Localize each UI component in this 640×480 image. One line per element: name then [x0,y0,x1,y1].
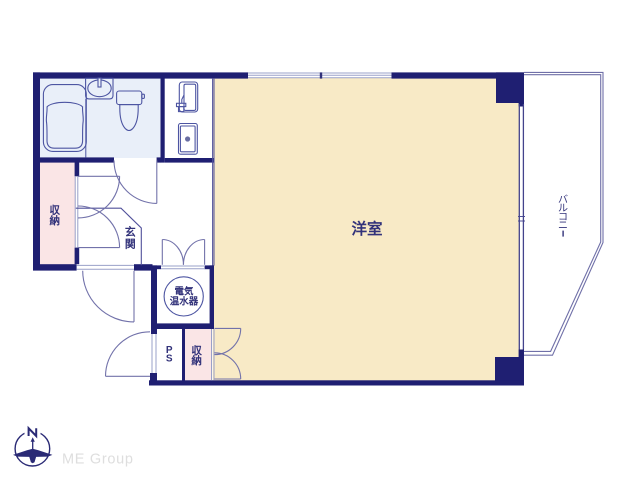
svg-text:ニ: ニ [558,220,568,231]
svg-text:S: S [166,353,173,364]
svg-text:温水器: 温水器 [170,296,199,308]
svg-text:電気: 電気 [174,285,194,297]
svg-text:納: 納 [191,354,202,367]
svg-text:関: 関 [125,238,136,251]
svg-text:ME Group: ME Group [62,452,134,468]
svg-text:納: 納 [49,214,60,227]
svg-text:洋室: 洋室 [351,219,382,238]
svg-text:玄: 玄 [125,225,136,239]
